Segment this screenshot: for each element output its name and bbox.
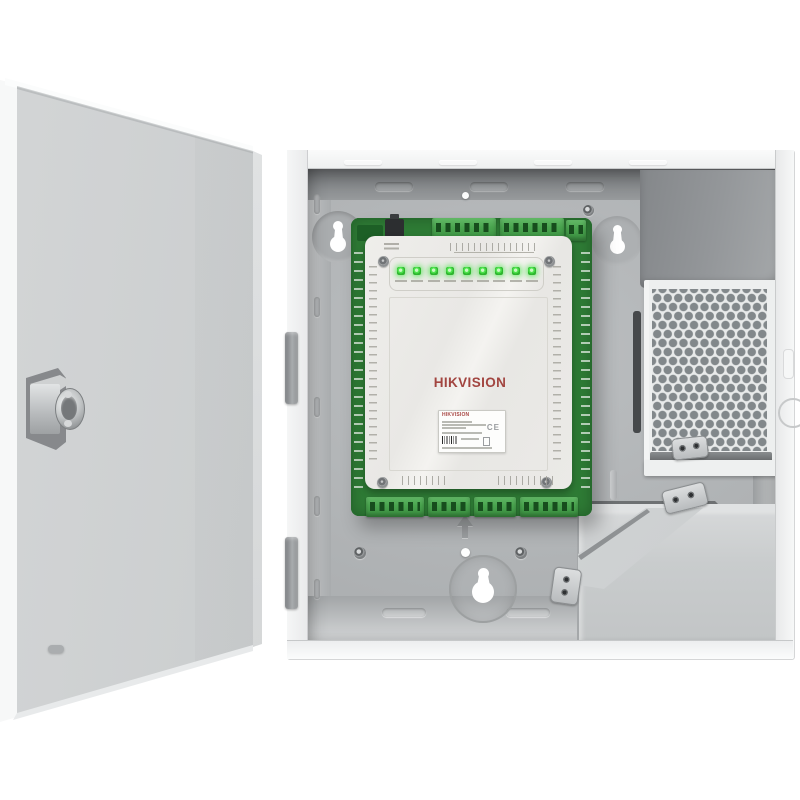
cover-screw — [378, 256, 389, 267]
terminal-slots — [504, 223, 560, 232]
label-brand-text: HIKVISION — [442, 412, 469, 418]
cover-microtext — [384, 243, 399, 250]
led-label — [477, 280, 489, 282]
panel-hole — [462, 192, 469, 199]
clamp-screw — [671, 496, 679, 504]
label-text-line — [442, 421, 472, 423]
knockout-slot — [470, 182, 508, 191]
panel-screw — [354, 547, 366, 559]
clamp-screw — [679, 444, 687, 452]
terminal-slots — [436, 223, 492, 232]
pcb-silkscreen-right — [581, 252, 590, 490]
knockout-slot — [314, 194, 320, 214]
terminal-pin-labels — [498, 476, 556, 485]
terminal-block — [520, 497, 578, 517]
knockout-slot — [314, 297, 320, 317]
label-text-line — [442, 424, 486, 426]
status-led — [397, 267, 405, 275]
led-label — [428, 280, 440, 282]
knockout-slot — [375, 182, 413, 191]
cover-screw — [377, 477, 388, 488]
flange-vent-slot — [439, 160, 477, 165]
led-label — [444, 280, 456, 282]
clamp-screw — [561, 588, 569, 596]
knockout-slot — [382, 608, 426, 617]
label-text-line — [442, 432, 482, 434]
terminal-pin-labels — [450, 243, 538, 251]
terminal-block — [366, 497, 424, 517]
cam-lock-cam — [64, 391, 72, 398]
terminal-slots — [569, 225, 583, 234]
power-supply-side-slot — [633, 311, 641, 433]
mounting-keyhole-bottom-icon — [472, 581, 494, 603]
led-label — [461, 280, 473, 282]
pcb-silkscreen-left — [354, 252, 363, 490]
flange-vent-slot — [629, 160, 667, 165]
power-supply-mount-sill — [644, 460, 777, 476]
status-led — [479, 267, 487, 275]
knockout-slot — [566, 182, 604, 191]
hinge-top — [285, 332, 298, 404]
cam-lock-cam — [64, 420, 72, 427]
product-label: HIKVISION CE — [438, 410, 506, 453]
terminal-block — [428, 497, 470, 517]
knockout-slot — [314, 496, 320, 516]
status-led — [528, 267, 536, 275]
door-stop-pin — [48, 645, 64, 653]
status-led — [512, 267, 520, 275]
cable-clamp — [671, 435, 709, 461]
terminal-pin-bracket — [454, 252, 534, 253]
terminal-slots — [432, 502, 466, 511]
led-label — [395, 280, 407, 282]
flange-vent-slot — [344, 160, 382, 165]
status-led — [430, 267, 438, 275]
knockout-slot — [506, 608, 550, 617]
honeycomb-vent-icon — [652, 289, 767, 451]
power-supply-housing — [640, 170, 777, 288]
ce-mark-icon: CE — [487, 423, 500, 432]
clamp-screw — [562, 576, 570, 584]
terminal-slots — [370, 502, 420, 511]
knockout-slot — [314, 579, 320, 599]
terminal-pin-labels — [402, 476, 450, 485]
terminal-block — [566, 220, 586, 241]
hinge-bottom — [285, 537, 298, 609]
clamp-screw — [692, 442, 700, 450]
hikvision-logo: HIKVISION — [394, 375, 546, 391]
status-led — [463, 267, 471, 275]
label-text-line — [442, 447, 492, 449]
mounting-keyhole-left-icon — [330, 236, 346, 252]
led-label — [526, 280, 538, 282]
product-photo: HIKVISION HIKVISION CE — [0, 0, 800, 800]
status-led — [446, 267, 454, 275]
barcode-icon — [442, 436, 458, 444]
cable-clamp — [550, 566, 583, 606]
status-led — [413, 267, 421, 275]
led-label — [510, 280, 522, 282]
led-label — [493, 280, 505, 282]
terminal-slots — [524, 502, 574, 511]
enclosure-flange-bottom — [287, 640, 793, 659]
knockout-slot — [314, 397, 320, 417]
panel-screw — [515, 547, 527, 559]
cam-lock-core — [61, 396, 77, 420]
flange-vent-slot — [534, 160, 572, 165]
knockout-circle — [778, 398, 800, 428]
terminal-pin-labels — [553, 266, 561, 462]
status-led — [495, 267, 503, 275]
clamp-screw — [687, 491, 695, 499]
door-latch-slot — [783, 349, 794, 379]
knockout-slot — [610, 470, 617, 500]
panel-screw — [583, 205, 594, 216]
weee-bin-icon — [483, 437, 490, 446]
terminal-pin-labels — [369, 266, 377, 462]
mounting-keyhole-right-icon — [610, 239, 625, 254]
label-text-line — [461, 438, 479, 440]
up-arrow-marking-icon — [462, 526, 468, 538]
terminal-block — [474, 497, 516, 517]
panel-hole — [461, 548, 470, 557]
label-text-line — [442, 427, 466, 429]
led-label — [411, 280, 423, 282]
terminal-slots — [478, 502, 512, 511]
